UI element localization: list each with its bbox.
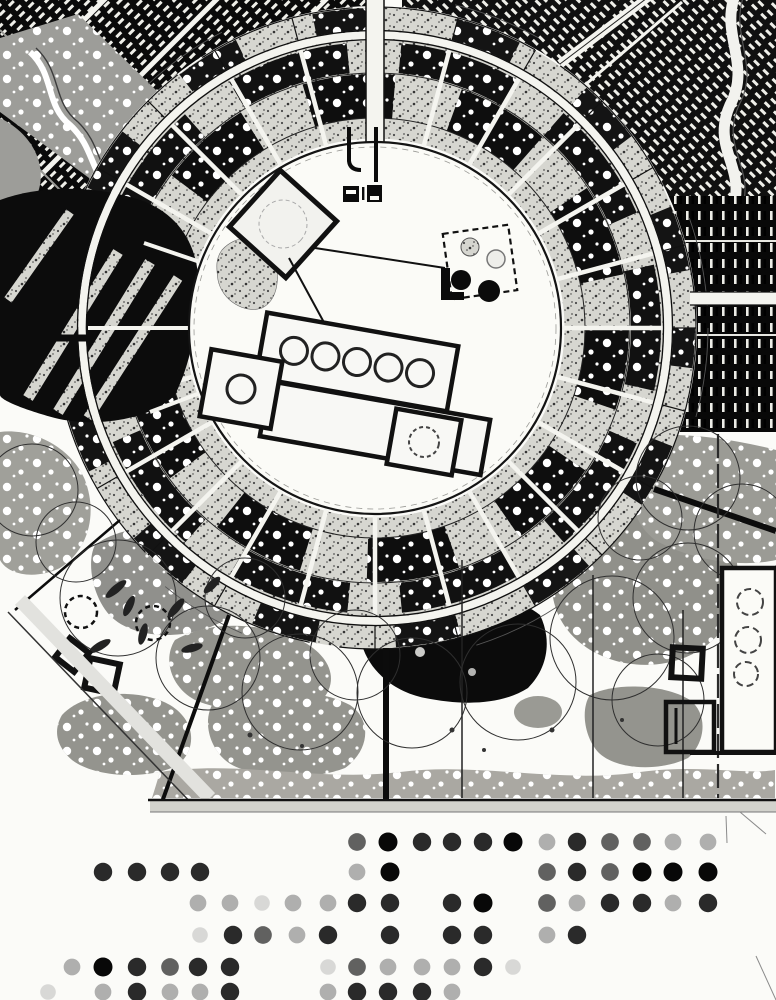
legend-dot — [601, 863, 619, 881]
legend-dot — [443, 833, 461, 851]
legend-dot — [444, 959, 461, 976]
plaza-gate-glyphs — [343, 185, 382, 202]
legend-dot — [161, 958, 179, 976]
legend-dot — [381, 926, 399, 944]
legend-dot — [474, 833, 492, 851]
legend-dot — [348, 894, 366, 912]
legend-dot — [700, 834, 717, 851]
legend-dot — [505, 959, 521, 975]
legend-dot — [568, 833, 586, 851]
legend-dot — [320, 895, 337, 912]
legend-dot — [414, 959, 431, 976]
legend-dot — [191, 863, 209, 881]
legend-dot — [538, 863, 556, 881]
legend-dot — [161, 863, 179, 881]
legend-dot — [94, 863, 112, 881]
legend-dot — [192, 927, 208, 943]
legend-dot — [665, 834, 682, 851]
legend-dot — [64, 959, 81, 976]
legend-dot — [349, 864, 366, 881]
legend-dot — [348, 958, 366, 976]
legend-dot — [568, 926, 586, 944]
legend-dot — [444, 984, 461, 1000]
courtyard-circle — [451, 270, 471, 290]
legend-dot — [128, 863, 146, 881]
legend-dot — [474, 926, 492, 944]
legend-dot — [699, 863, 718, 882]
legend-dot — [633, 863, 652, 882]
legend-dot — [474, 958, 492, 976]
courtyard-circle — [487, 250, 505, 268]
legend-dot — [699, 894, 717, 912]
legend-dot — [128, 958, 146, 976]
legend-dot — [254, 926, 272, 944]
legend-dot — [664, 863, 683, 882]
legend-dot — [348, 833, 366, 851]
legend-dot — [539, 834, 556, 851]
legend-dot — [320, 959, 336, 975]
legend-dot — [94, 958, 113, 977]
legend-dot — [224, 926, 242, 944]
plaza-building-square-left — [200, 349, 283, 428]
legend-dot — [319, 926, 337, 944]
legend-dot — [601, 833, 619, 851]
right-edge-building — [722, 568, 776, 752]
legend-dot — [539, 927, 556, 944]
legend-dot — [190, 895, 207, 912]
legend-dot — [95, 984, 112, 1000]
legend-dot — [254, 895, 270, 911]
legend-dot — [221, 958, 239, 976]
legend-dot — [320, 984, 337, 1000]
legend-dot — [413, 833, 431, 851]
courtyard-circle — [478, 280, 500, 302]
legend-dot — [665, 895, 682, 912]
legend-dot — [443, 926, 461, 944]
legend-dot — [381, 894, 399, 912]
legend-dot — [162, 984, 179, 1000]
legend-dot — [601, 894, 619, 912]
legend-dot — [40, 984, 56, 1000]
legend-dot — [189, 958, 207, 976]
courtyard-circle — [461, 238, 479, 256]
legend-dot — [289, 927, 306, 944]
east-road — [690, 292, 776, 305]
legend-dot — [192, 984, 209, 1000]
plaza-building-square-lower — [387, 409, 462, 476]
legend-dot — [379, 833, 398, 852]
legend-dot — [285, 895, 302, 912]
legend-dot — [474, 894, 493, 913]
legend-dot — [380, 959, 397, 976]
map-border — [148, 800, 776, 812]
legend-dot — [222, 895, 239, 912]
master-plan-drawing — [0, 0, 776, 1000]
legend-dot — [568, 863, 586, 881]
legend-dot — [633, 833, 651, 851]
legend-dot — [443, 894, 461, 912]
legend-dot — [538, 894, 556, 912]
legend-dot — [504, 833, 523, 852]
master-plan-canvas — [0, 0, 776, 1000]
legend-dot — [633, 894, 651, 912]
legend-dot — [569, 895, 586, 912]
legend-dot — [381, 863, 400, 882]
